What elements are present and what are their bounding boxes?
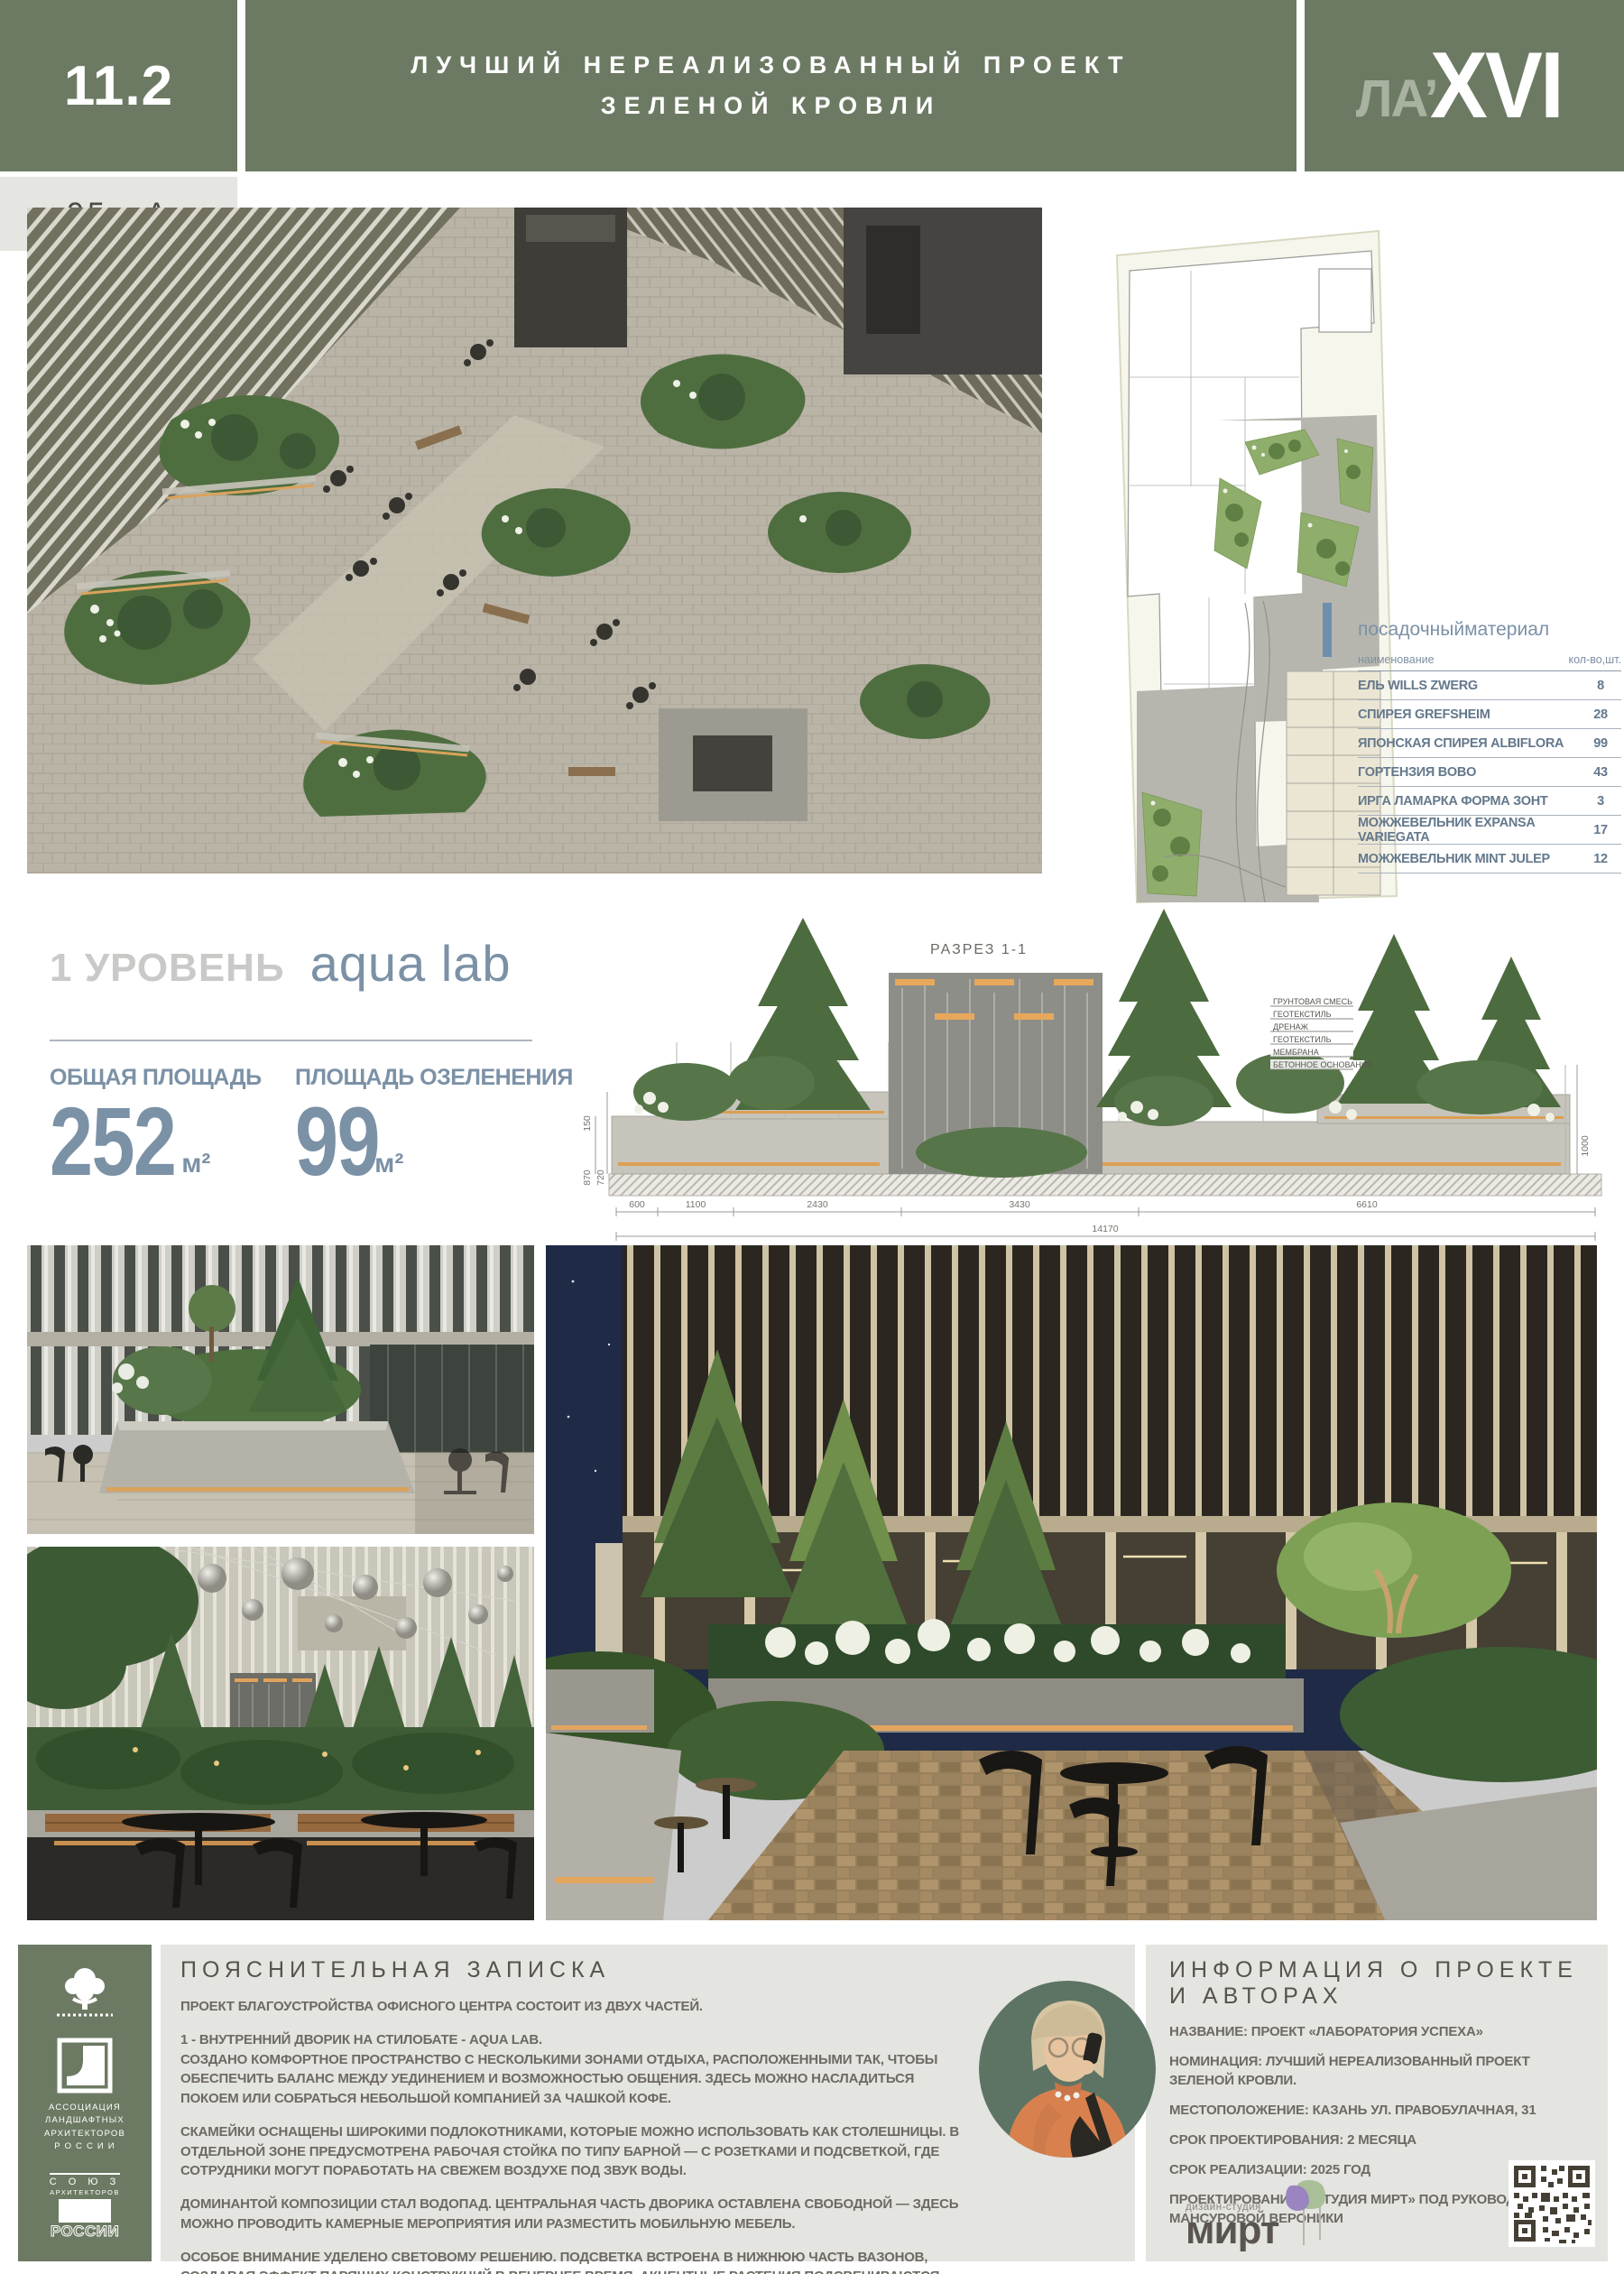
plant-qty: 3: [1580, 794, 1621, 809]
section-drawing-illustration: РАЗРЕЗ 1-1: [577, 907, 1615, 1243]
union-logo-mid: АРХИТЕКТОРОВ: [50, 2188, 120, 2196]
svg-text:3430: 3430: [1009, 1199, 1030, 1210]
note-paragraph: ОСОБОЕ ВНИМАНИЕ УДЕЛЕНО СВЕТОВОМУ РЕШЕНИ…: [180, 2248, 974, 2274]
svg-text:БЕТОННОЕ ОСНОВАНИЕ: БЕТОННОЕ ОСНОВАНИЕ: [1273, 1060, 1372, 1069]
level-name: aqua lab: [310, 934, 512, 993]
note-paragraph: 1 - ВНУТРЕННИЙ ДВОРИК НА СТИЛОБАТЕ - AQU…: [180, 2030, 974, 2109]
aerial-render-illustration: [27, 208, 1042, 874]
stat-unit: м²: [181, 1149, 210, 1183]
info-line: НОМИНАЦИЯ: ЛУЧШИЙ НЕРЕАЛИЗОВАННЫЙ ПРОЕКТ…: [1169, 2052, 1589, 2090]
union-logo-box: [59, 2199, 111, 2223]
nomination-title-line1: ЛУЧШИЙ НЕРЕАЛИЗОВАННЫЙ ПРОЕКТ: [411, 51, 1130, 79]
author-portrait-illustration: [979, 1981, 1156, 2158]
section-1-1-drawing: РАЗРЕЗ 1-1: [577, 907, 1615, 1243]
board-index: 11.2: [64, 54, 173, 118]
svg-text:14170: 14170: [1092, 1224, 1118, 1234]
festival-logo-suffix: XVI: [1430, 32, 1562, 140]
aerial-courtyard-render: [27, 208, 1042, 874]
plant-qty: 17: [1580, 823, 1621, 837]
section-title: РАЗРЕЗ 1-1: [930, 942, 1028, 957]
union-logo-bottom: РОССИИ: [50, 2223, 120, 2241]
info-line: МЕСТОПОЛОЖЕНИЕ: КАЗАНЬ УЛ. ПРАВОБУЛАЧНАЯ…: [1169, 2101, 1589, 2120]
evening-garden-illustration: [27, 1547, 534, 1920]
plant-table-header: наименование кол-во,шт.: [1358, 653, 1621, 671]
stat-value: 252: [50, 1100, 175, 1183]
author-avatar: [979, 1981, 1156, 2158]
divider: [50, 1040, 532, 1041]
project-info-panel: ИНФОРМАЦИЯ О ПРОЕКТЕ И АВТОРАХ НАЗВАНИЕ:…: [1146, 1945, 1608, 2261]
evening-garden-render: [27, 1547, 534, 1920]
note-paragraph: ДОМИНАНТОЙ КОМПОЗИЦИИ СТАЛ ВОДОПАД. ЦЕНТ…: [180, 2195, 974, 2234]
stat-value: 99: [295, 1100, 379, 1183]
qr-code: [1509, 2160, 1595, 2247]
svg-text:1000: 1000: [1580, 1135, 1591, 1157]
competition-board: 11.2 ЛУЧШИЙ НЕРЕАЛИЗОВАННЫЙ ПРОЕКТ ЗЕЛЕН…: [0, 0, 1624, 2274]
plant-name: МОЖЖЕВЕЛЬНИК MINT JULEP: [1358, 852, 1550, 866]
col-name-header: наименование: [1358, 653, 1435, 666]
svg-text:870: 870: [582, 1169, 593, 1186]
svg-text:МЕМБРАНА: МЕМБРАНА: [1273, 1048, 1319, 1057]
night-terrace-render: [546, 1245, 1597, 1920]
info-line: НАЗВАНИЕ: ПРОЕКТ «ЛАБОРАТОРИЯ УСПЕХА»: [1169, 2022, 1589, 2041]
stat-unit: м²: [374, 1149, 403, 1183]
svg-text:720: 720: [595, 1169, 606, 1186]
plant-name: СПИРЕЯ GREFSHEIM: [1358, 707, 1490, 722]
table-row: МОЖЖЕВЕЛЬНИК EXPANSA VARIEGATA17: [1358, 816, 1621, 845]
organizer-logos-sidebar: АССОЦИАЦИЯ ЛАНДШАФТНЫХ АРХИТЕКТОРОВ Р О …: [18, 1945, 152, 2261]
table-row: ИРГА ЛАМАРКА ФОРМА ЗОНТ3: [1358, 787, 1621, 816]
note-paragraph: ПРОЕКТ БЛАГОУСТРОЙСТВА ОФИСНОГО ЦЕНТРА С…: [180, 1997, 974, 2017]
header-title-box: ЛУЧШИЙ НЕРЕАЛИЗОВАННЫЙ ПРОЕКТ ЗЕЛЕНОЙ КР…: [245, 0, 1296, 171]
plant-name: ЕЛЬ WILLS ZWERG: [1358, 679, 1478, 693]
festival-logo-prefix: ЛА’: [1356, 69, 1437, 129]
day-courtyard-render: [27, 1245, 534, 1534]
plant-name: ИРГА ЛАМАРКА ФОРМА ЗОНТ: [1358, 794, 1547, 809]
nomination-title-line2: ЗЕЛЕНОЙ КРОВЛИ: [601, 92, 942, 120]
svg-text:1100: 1100: [686, 1199, 706, 1210]
plant-qty: 99: [1580, 736, 1621, 751]
svg-text:6610: 6610: [1356, 1199, 1378, 1210]
architects-union-logo: С О Ю З АРХИТЕКТОРОВ РОССИИ: [50, 2173, 120, 2241]
header-index-box: 11.2: [0, 0, 237, 171]
plant-qty: 12: [1580, 852, 1621, 866]
svg-text:2430: 2430: [807, 1199, 828, 1210]
total-area-stat: ОБЩАЯ ПЛОЩАДЬ 252 м²: [50, 1065, 295, 1183]
union-logo-top: С О Ю З: [50, 2173, 120, 2187]
col-qty-header: кол-во,шт.: [1568, 653, 1621, 666]
festival-logo: ЛА’ XVI: [1305, 0, 1624, 171]
plant-name: МОЖЖЕВЕЛЬНИК EXPANSA VARIEGATA: [1358, 816, 1580, 845]
note-heading: ПОЯСНИТЕЛЬНАЯ ЗАПИСКА: [180, 1957, 974, 1983]
plant-table-title: посадочныйматериал: [1358, 619, 1621, 641]
svg-text:ГЕОТЕКСТИЛЬ: ГЕОТЕКСТИЛЬ: [1273, 1035, 1332, 1044]
plant-name: ЯПОНСКАЯ СПИРЕЯ ALBIFLORA: [1358, 736, 1564, 751]
lit-round-tree: [1277, 1502, 1511, 1638]
night-terrace-illustration: [546, 1245, 1597, 1920]
svg-text:ГРУНТОВАЯ СМЕСЬ: ГРУНТОВАЯ СМЕСЬ: [1273, 997, 1352, 1006]
svg-text:ГЕОТЕКСТИЛЬ: ГЕОТЕКСТИЛЬ: [1273, 1010, 1332, 1019]
studio-logo: дизайн-студия мирт: [1186, 2177, 1338, 2249]
level-label: 1 УРОВЕНЬ: [50, 946, 285, 991]
studio-name: мирт: [1186, 2213, 1278, 2249]
day-courtyard-illustration: [27, 1245, 534, 1534]
table-row: ГОРТЕНЗИЯ BOBO43: [1358, 758, 1621, 787]
myrtle-leaves-icon: [1284, 2177, 1338, 2249]
plant-qty: 8: [1580, 679, 1621, 693]
plant-name: ГОРТЕНЗИЯ BOBO: [1358, 765, 1476, 780]
table-row: МОЖЖЕВЕЛЬНИК MINT JULEP12: [1358, 845, 1621, 874]
note-paragraph: СКАМЕЙКИ ОСНАЩЕНЫ ШИРОКИМИ ПОДЛОКОТНИКАМ…: [180, 2122, 974, 2181]
svg-text:150: 150: [582, 1115, 593, 1132]
landscape-association-logo: [56, 2037, 114, 2094]
info-heading: ИНФОРМАЦИЯ О ПРОЕКТЕ И АВТОРАХ: [1169, 1957, 1589, 2010]
level-summary: 1 УРОВЕНЬ aqua lab ОБЩАЯ ПЛОЩАДЬ 252 м² …: [50, 934, 541, 1183]
svg-text:ДРЕНАЖ: ДРЕНАЖ: [1273, 1022, 1309, 1031]
table-row: СПИРЕЯ GREFSHEIM28: [1358, 700, 1621, 729]
info-line: СРОК ПРОЕКТИРОВАНИЯ: 2 МЕСЯЦА: [1169, 2131, 1589, 2149]
plant-qty: 28: [1580, 707, 1621, 722]
green-area-stat: ПЛОЩАДЬ ОЗЕЛЕНЕНИЯ 99 м²: [295, 1065, 540, 1183]
table-row: ЯПОНСКАЯ СПИРЕЯ ALBIFLORA99: [1358, 729, 1621, 758]
association-caption: АССОЦИАЦИЯ ЛАНДШАФТНЫХ АРХИТЕКТОРОВ Р О …: [44, 2102, 125, 2153]
plant-material-table: посадочныйматериал наименование кол-во,ш…: [1358, 619, 1621, 874]
plant-qty: 43: [1580, 765, 1621, 780]
pixel-tree-logo: [53, 1964, 116, 2020]
svg-text:600: 600: [629, 1199, 645, 1210]
table-row: ЕЛЬ WILLS ZWERG8: [1358, 671, 1621, 700]
